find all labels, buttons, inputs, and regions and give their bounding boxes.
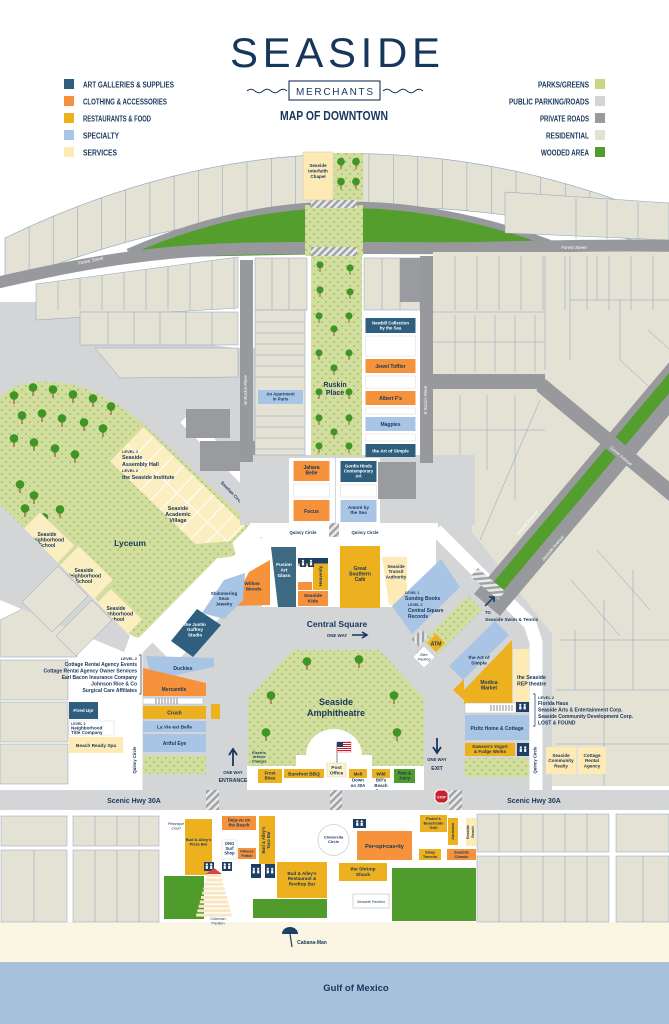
svg-text:Title Company: Title Company — [71, 730, 103, 735]
svg-text:the Seaside: the Seaside — [517, 675, 546, 681]
svg-text:Ruskin: Ruskin — [323, 382, 346, 389]
svg-text:Office: Office — [330, 770, 344, 776]
svg-text:Beach Ready Spa: Beach Ready Spa — [76, 743, 117, 749]
svg-text:Seaside Swim & Tennis: Seaside Swim & Tennis — [485, 617, 539, 623]
svg-text:Per•spi•cas•ity: Per•spi•cas•ity — [365, 844, 405, 850]
svg-text:ENTRANCE: ENTRANCE — [219, 778, 248, 784]
svg-text:LOST & FOUND: LOST & FOUND — [538, 721, 576, 727]
svg-text:Records: Records — [408, 614, 428, 620]
svg-text:REP theatre: REP theatre — [517, 682, 546, 688]
svg-text:ONE WAY: ONE WAY — [223, 770, 243, 775]
svg-text:Forest Street: Forest Street — [561, 245, 587, 250]
svg-text:the Art of Simple: the Art of Simple — [372, 449, 409, 454]
svg-text:Scenic Hwy 30A: Scenic Hwy 30A — [507, 798, 561, 805]
svg-text:Court: Court — [171, 827, 181, 831]
svg-text:LEVEL 1: LEVEL 1 — [405, 591, 420, 595]
svg-text:Beach: Beach — [471, 826, 475, 838]
svg-text:ART GALLERIES & SUPPLIES: ART GALLERIES & SUPPLIES — [83, 81, 175, 90]
svg-text:Fetish: Fetish — [241, 854, 253, 858]
svg-text:Agency: Agency — [584, 763, 601, 768]
svg-text:Cabana-Man: Cabana-Man — [297, 940, 327, 946]
svg-text:Amphitheatre: Amphitheatre — [307, 708, 365, 718]
svg-text:Melt: Melt — [354, 772, 363, 777]
svg-text:LEVEL 2: LEVEL 2 — [121, 656, 138, 661]
svg-text:Lyceum: Lyceum — [114, 538, 146, 548]
svg-text:Circle: Circle — [328, 839, 340, 844]
svg-text:Scenic Hwy 30A: Scenic Hwy 30A — [107, 798, 161, 805]
svg-text:STOP: STOP — [437, 796, 446, 800]
svg-text:MAP OF DOWNTOWN: MAP OF DOWNTOWN — [280, 108, 388, 123]
svg-text:Chapel: Chapel — [310, 174, 325, 179]
svg-text:in Paris: in Paris — [273, 396, 289, 401]
svg-text:PUBLIC PARKING/ROADS: PUBLIC PARKING/ROADS — [509, 98, 590, 107]
svg-text:Jewel Toffier: Jewel Toffier — [375, 364, 405, 370]
svg-text:Amavida: Amavida — [450, 822, 455, 839]
svg-text:Beach: Beach — [374, 783, 387, 788]
svg-text:Quincy Circle: Quincy Circle — [352, 530, 380, 535]
svg-text:LEVEL 2: LEVEL 2 — [408, 603, 423, 607]
svg-text:EXIT: EXIT — [431, 766, 443, 772]
svg-text:SERVICES: SERVICES — [83, 149, 118, 158]
svg-text:the Shrimp: the Shrimp — [350, 867, 375, 873]
svg-text:Market: Market — [481, 686, 497, 692]
svg-text:Post: Post — [331, 765, 342, 771]
svg-text:Grill: Grill — [429, 825, 437, 830]
svg-text:Authority: Authority — [386, 574, 407, 579]
svg-text:Earl Bacon Insurance Company: Earl Bacon Insurance Company — [62, 675, 138, 681]
svg-text:SPECIALTY: SPECIALTY — [83, 132, 120, 141]
svg-text:Kids: Kids — [308, 598, 319, 604]
svg-text:CLOTHING & ACCESSORIES: CLOTHING & ACCESSORIES — [83, 98, 168, 107]
svg-text:ONE WAY: ONE WAY — [327, 633, 347, 638]
svg-text:LEVEL 2: LEVEL 2 — [122, 468, 139, 473]
svg-text:E Ruskin Place: E Ruskin Place — [423, 385, 428, 414]
svg-text:Art: Art — [281, 567, 288, 573]
svg-text:Jewelry: Jewelry — [216, 601, 233, 606]
svg-text:Seaside: Seaside — [309, 163, 327, 168]
svg-text:Pavilion: Pavilion — [211, 922, 224, 926]
svg-text:Fitness: Fitness — [240, 850, 253, 854]
svg-text:PARKS/GREENS: PARKS/GREENS — [538, 81, 590, 90]
svg-text:ONE WAY: ONE WAY — [427, 757, 447, 762]
svg-text:by the Sea: by the Sea — [380, 326, 402, 331]
svg-text:Fusion: Fusion — [276, 562, 292, 568]
svg-text:Juicy: Juicy — [399, 775, 411, 780]
svg-text:the Art of: the Art of — [468, 655, 490, 661]
svg-text:Wild: Wild — [376, 772, 386, 777]
svg-text:Realty: Realty — [554, 763, 568, 768]
svg-text:the Sea: the Sea — [350, 510, 367, 515]
svg-text:Surgical Care Affiliates: Surgical Care Affiliates — [82, 688, 137, 694]
svg-text:Artful Eye: Artful Eye — [163, 741, 187, 747]
svg-text:Shack: Shack — [356, 872, 370, 878]
svg-text:Focus: Focus — [304, 509, 319, 515]
svg-text:Sundog Books: Sundog Books — [405, 596, 440, 602]
svg-text:Bill's: Bill's — [376, 778, 387, 783]
svg-text:on 30A: on 30A — [351, 783, 366, 788]
svg-text:Albert F's: Albert F's — [379, 396, 402, 402]
svg-text:ATM: ATM — [431, 642, 442, 648]
svg-text:Gulf of Mexico: Gulf of Mexico — [323, 983, 389, 994]
svg-text:Charger: Charger — [252, 759, 267, 763]
svg-text:Magpies: Magpies — [380, 422, 400, 428]
svg-text:Bike: Bike — [420, 653, 427, 657]
svg-text:PRIVATE ROADS: PRIVATE ROADS — [540, 115, 589, 124]
svg-text:Shop: Shop — [224, 851, 235, 856]
svg-text:Johnson Rice & Co: Johnson Rice & Co — [91, 682, 137, 688]
svg-text:LEVEL 1: LEVEL 1 — [122, 449, 139, 454]
svg-text:Rooftop Bar: Rooftop Bar — [289, 881, 316, 886]
svg-text:Parking: Parking — [418, 658, 432, 662]
svg-text:Central Square: Central Square — [307, 619, 368, 629]
svg-text:LEVEL 2: LEVEL 2 — [538, 695, 555, 700]
svg-text:Seaside: Seaside — [319, 697, 353, 707]
svg-text:Cottage Rental Agency Events: Cottage Rental Agency Events — [65, 662, 138, 668]
svg-text:Coleman: Coleman — [210, 917, 225, 921]
svg-text:Bites: Bites — [265, 775, 276, 780]
svg-text:Interfaith: Interfaith — [308, 168, 328, 173]
svg-text:Mercantile: Mercantile — [162, 687, 187, 693]
svg-text:TO: TO — [485, 610, 491, 615]
svg-text:Taco Bar: Taco Bar — [266, 831, 271, 849]
svg-text:Classic: Classic — [454, 854, 469, 859]
svg-text:Glass: Glass — [277, 573, 290, 579]
svg-text:Quincy Circle: Quincy Circle — [132, 746, 137, 774]
svg-text:Petanque: Petanque — [168, 822, 184, 826]
svg-text:Barefoot BBQ: Barefoot BBQ — [288, 772, 320, 778]
svg-text:the Seaside Institute: the Seaside Institute — [122, 475, 174, 481]
svg-text:Quincy Circle: Quincy Circle — [290, 530, 318, 535]
svg-text:Crush: Crush — [167, 711, 181, 717]
svg-text:Seaside Community Development: Seaside Community Development Corp. — [538, 714, 634, 720]
svg-text:La Vie est Belle: La Vie est Belle — [157, 725, 192, 731]
svg-text:Florida Haus: Florida Haus — [538, 701, 569, 707]
svg-text:W Ruskin Place: W Ruskin Place — [243, 375, 248, 405]
svg-text:Art: Art — [355, 474, 362, 479]
svg-text:Seaside Arts & Entertainment C: Seaside Arts & Entertainment Corp. — [538, 708, 623, 714]
svg-text:Fired Up!: Fired Up! — [73, 708, 94, 713]
svg-text:Belle: Belle — [306, 471, 318, 477]
svg-text:RESTAURANTS & FOOD: RESTAURANTS & FOOD — [83, 115, 151, 124]
svg-text:Village: Village — [169, 518, 186, 524]
svg-text:º Woods: º Woods — [243, 586, 262, 592]
svg-text:Down: Down — [352, 778, 364, 783]
svg-text:Studio: Studio — [188, 632, 202, 637]
svg-text:MERCHANTS: MERCHANTS — [296, 87, 373, 98]
svg-text:the Beach: the Beach — [229, 823, 250, 828]
svg-text:Seaside: Seaside — [122, 455, 142, 461]
svg-text:Seaside: Seaside — [304, 593, 322, 599]
svg-text:Tweeds: Tweeds — [423, 854, 438, 859]
svg-text:Heavenly: Heavenly — [318, 565, 323, 586]
svg-text:Café: Café — [355, 577, 366, 583]
svg-text:WOODED AREA: WOODED AREA — [541, 149, 589, 158]
svg-text:Seaside Pavilion: Seaside Pavilion — [357, 900, 385, 904]
svg-text:Seaside: Seaside — [466, 825, 470, 839]
svg-text:RESIDENTIAL: RESIDENTIAL — [546, 132, 589, 141]
svg-text:& Fudge Works: & Fudge Works — [474, 749, 507, 754]
svg-text:Quincy Circle: Quincy Circle — [533, 746, 538, 774]
svg-text:Pizitz Home & Cottage: Pizitz Home & Cottage — [470, 726, 523, 732]
svg-text:Place: Place — [326, 390, 344, 397]
svg-text:Simple: Simple — [471, 660, 487, 666]
svg-text:Willow: Willow — [244, 581, 259, 587]
svg-text:Duckies: Duckies — [173, 666, 192, 672]
svg-text:Cottage Rental Agency Owner Se: Cottage Rental Agency Owner Services — [44, 669, 138, 675]
svg-text:Pizza Bar: Pizza Bar — [190, 842, 208, 847]
